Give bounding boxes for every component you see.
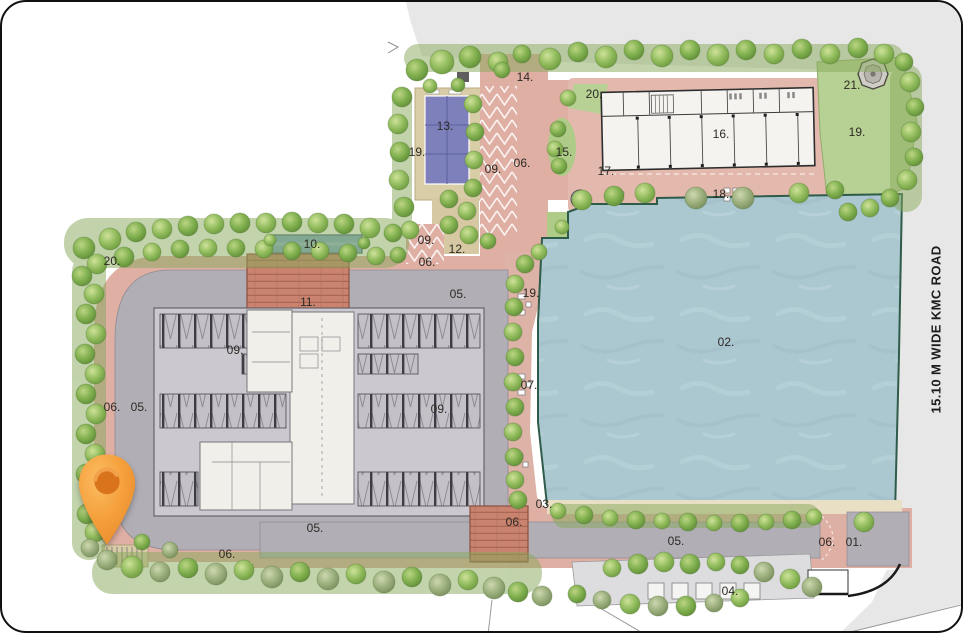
tree-icon — [143, 243, 161, 261]
tree-icon — [504, 373, 522, 391]
tree-icon — [339, 244, 357, 262]
tree-icon — [575, 506, 593, 524]
tree-icon — [152, 219, 172, 239]
tree-icon — [458, 202, 476, 220]
tree-icon — [282, 212, 302, 232]
tree-icon — [550, 121, 566, 137]
tree-icon — [707, 553, 725, 571]
tree-icon — [839, 203, 857, 221]
tree-icon — [651, 45, 673, 67]
tree-icon — [494, 62, 510, 78]
tree-icon — [199, 239, 217, 257]
tree-icon — [547, 141, 563, 157]
tree-icon — [627, 511, 645, 529]
tree-icon — [731, 556, 749, 574]
tree-icon — [504, 323, 522, 341]
tree-icon — [603, 559, 621, 577]
tree-icon — [506, 398, 524, 416]
tree-icon — [358, 237, 370, 249]
tree-icon — [789, 183, 809, 203]
tree-icon — [792, 39, 812, 59]
tree-icon — [373, 571, 395, 593]
tree-icon — [705, 594, 723, 612]
tree-icon — [171, 240, 189, 258]
tree-icon — [230, 213, 250, 233]
tree-icon — [464, 179, 482, 197]
tree-icon — [465, 151, 483, 169]
tree-icon — [99, 228, 121, 250]
tree-icon — [593, 591, 611, 609]
tree-icon — [86, 324, 106, 344]
tree-icon — [504, 423, 522, 441]
tree-icon — [290, 562, 310, 582]
tree-icon — [732, 187, 754, 209]
tree-icon — [227, 239, 245, 257]
tree-icon — [178, 216, 198, 236]
tree-icon — [826, 181, 844, 199]
tree-icon — [897, 170, 917, 190]
tree-icon — [679, 513, 697, 531]
tree-icon — [162, 542, 178, 558]
tree-icon — [531, 244, 547, 260]
tree-icon — [654, 552, 674, 572]
tree-icon — [624, 40, 644, 60]
tree-icon — [406, 59, 428, 81]
main-building — [154, 308, 484, 516]
tree-icon — [820, 44, 840, 64]
tree-icon — [595, 46, 617, 68]
tree-icon — [429, 574, 451, 596]
clubhouse-16 — [601, 88, 815, 171]
tree-icon — [72, 266, 92, 286]
tree-icon — [802, 577, 822, 597]
tree-icon — [505, 448, 523, 466]
tree-icon — [628, 554, 648, 574]
tree-icon — [635, 183, 655, 203]
tree-icon — [389, 170, 409, 190]
tree-icon — [550, 503, 566, 519]
tree-icon — [895, 53, 913, 71]
tree-icon — [901, 122, 921, 142]
tree-icon — [308, 213, 328, 233]
tree-icon — [516, 255, 534, 273]
tree-icon — [459, 46, 481, 68]
tree-icon — [76, 384, 96, 404]
tree-icon — [76, 304, 96, 324]
tree-icon — [114, 247, 134, 267]
tree-icon — [572, 190, 592, 210]
tree-icon — [731, 514, 749, 532]
tree-icon — [654, 513, 670, 529]
tree-icon — [848, 38, 868, 58]
site-plan-drawing — [2, 2, 963, 633]
tree-icon — [764, 44, 784, 64]
tree-icon — [317, 568, 339, 590]
tree-icon — [736, 40, 756, 60]
tree-icon — [604, 186, 624, 206]
tree-icon — [464, 95, 482, 113]
tree-icon — [602, 510, 618, 526]
tree-icon — [401, 221, 419, 239]
tree-icon — [334, 214, 354, 234]
tree-icon — [178, 558, 198, 578]
tree-icon — [75, 344, 95, 364]
tree-icon — [126, 222, 146, 242]
tree-icon — [905, 148, 923, 166]
tree-icon — [234, 560, 254, 580]
tree-icon — [85, 364, 105, 384]
tree-icon — [367, 247, 385, 265]
tree-icon — [466, 123, 484, 141]
tree-icon — [390, 247, 406, 263]
tree-icon — [506, 348, 524, 366]
tree-icon — [568, 585, 586, 603]
break-symbol — [388, 42, 398, 53]
tree-icon — [480, 233, 496, 249]
tree-icon — [707, 44, 729, 66]
tree-icon — [460, 226, 478, 244]
tree-icon — [676, 596, 696, 616]
tree-icon — [440, 216, 458, 234]
tree-icon — [854, 512, 874, 532]
tree-icon — [783, 511, 801, 529]
tree-icon — [423, 79, 437, 93]
tree-icon — [680, 40, 700, 60]
tree-icon — [906, 98, 924, 116]
location-pin-icon — [76, 452, 138, 548]
tree-icon — [506, 471, 524, 489]
tree-icon — [780, 569, 800, 589]
tree-icon — [261, 566, 283, 588]
tree-icon — [551, 158, 567, 174]
road-name-label: 15.10 M WIDE KMC ROAD — [929, 218, 944, 442]
tree-icon — [388, 114, 408, 134]
tree-icon — [685, 187, 707, 209]
tree-icon — [384, 224, 402, 242]
tree-icon — [758, 514, 774, 530]
water-body-02 — [538, 194, 902, 518]
tree-icon — [539, 48, 561, 70]
tree-icon — [731, 589, 749, 607]
tree-icon — [874, 44, 894, 64]
tree-icon — [648, 596, 668, 616]
tree-icon — [440, 190, 458, 208]
location-pin-marker[interactable] — [76, 452, 138, 548]
tree-icon — [121, 556, 143, 578]
tree-icon — [555, 220, 569, 234]
tree-icon — [620, 594, 640, 614]
tree-icon — [150, 562, 170, 582]
tree-icon — [97, 550, 117, 570]
tree-icon — [204, 214, 224, 234]
tree-icon — [568, 42, 588, 62]
tree-icon — [509, 491, 527, 509]
tree-icon — [392, 87, 412, 107]
tree-icon — [900, 72, 920, 92]
tree-icon — [283, 242, 301, 260]
tree-icon — [806, 509, 822, 525]
tree-icon — [706, 515, 722, 531]
site-plan: 01.02.03.04.05.05.05.05.06.06.06.06.06.0… — [0, 0, 963, 633]
tree-icon — [360, 218, 380, 238]
tree-icon — [861, 199, 879, 217]
tree-icon — [532, 586, 552, 606]
tree-icon — [505, 298, 523, 316]
tree-icon — [205, 563, 227, 585]
tree-icon — [402, 567, 422, 587]
tree-icon — [680, 554, 700, 574]
tree-icon — [560, 90, 576, 106]
tree-icon — [264, 234, 276, 246]
tree-icon — [346, 564, 366, 584]
tree-icon — [483, 577, 505, 599]
tree-icon — [390, 142, 410, 162]
tree-icon — [458, 570, 478, 590]
tree-icon — [430, 50, 454, 74]
tree-icon — [84, 284, 104, 304]
tree-icon — [451, 78, 465, 92]
tree-icon — [76, 424, 96, 444]
tree-icon — [311, 242, 329, 260]
tree-icon — [506, 275, 524, 293]
tree-icon — [394, 197, 414, 217]
tree-icon — [881, 189, 899, 207]
tree-icon — [513, 45, 531, 63]
tree-icon — [508, 582, 528, 602]
tree-icon — [86, 404, 106, 424]
tree-icon — [754, 562, 774, 582]
tree-icon — [256, 213, 276, 233]
